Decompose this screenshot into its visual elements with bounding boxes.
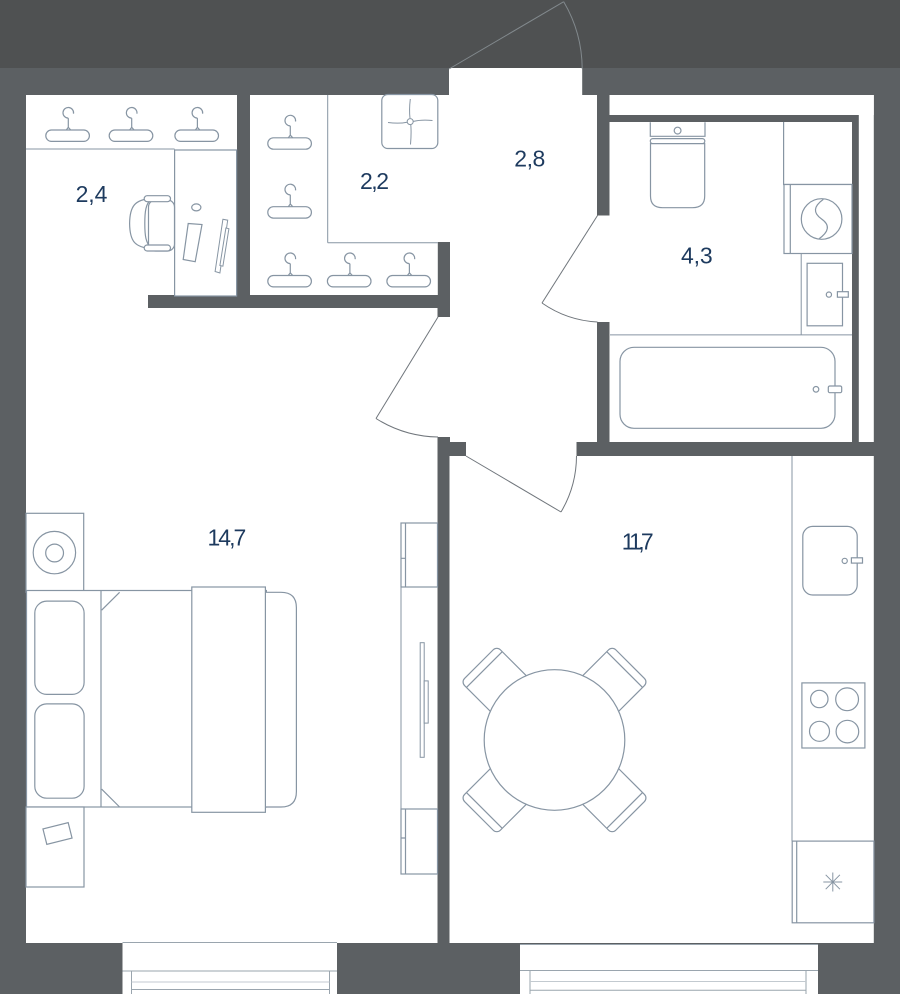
svg-text:11,7: 11,7 <box>622 528 654 554</box>
svg-text:14,7: 14,7 <box>207 524 246 550</box>
svg-text:2,2: 2,2 <box>360 168 389 194</box>
svg-text:2,4: 2,4 <box>76 181 108 207</box>
svg-text:2,8: 2,8 <box>514 146 545 172</box>
svg-text:4,3: 4,3 <box>681 243 713 269</box>
